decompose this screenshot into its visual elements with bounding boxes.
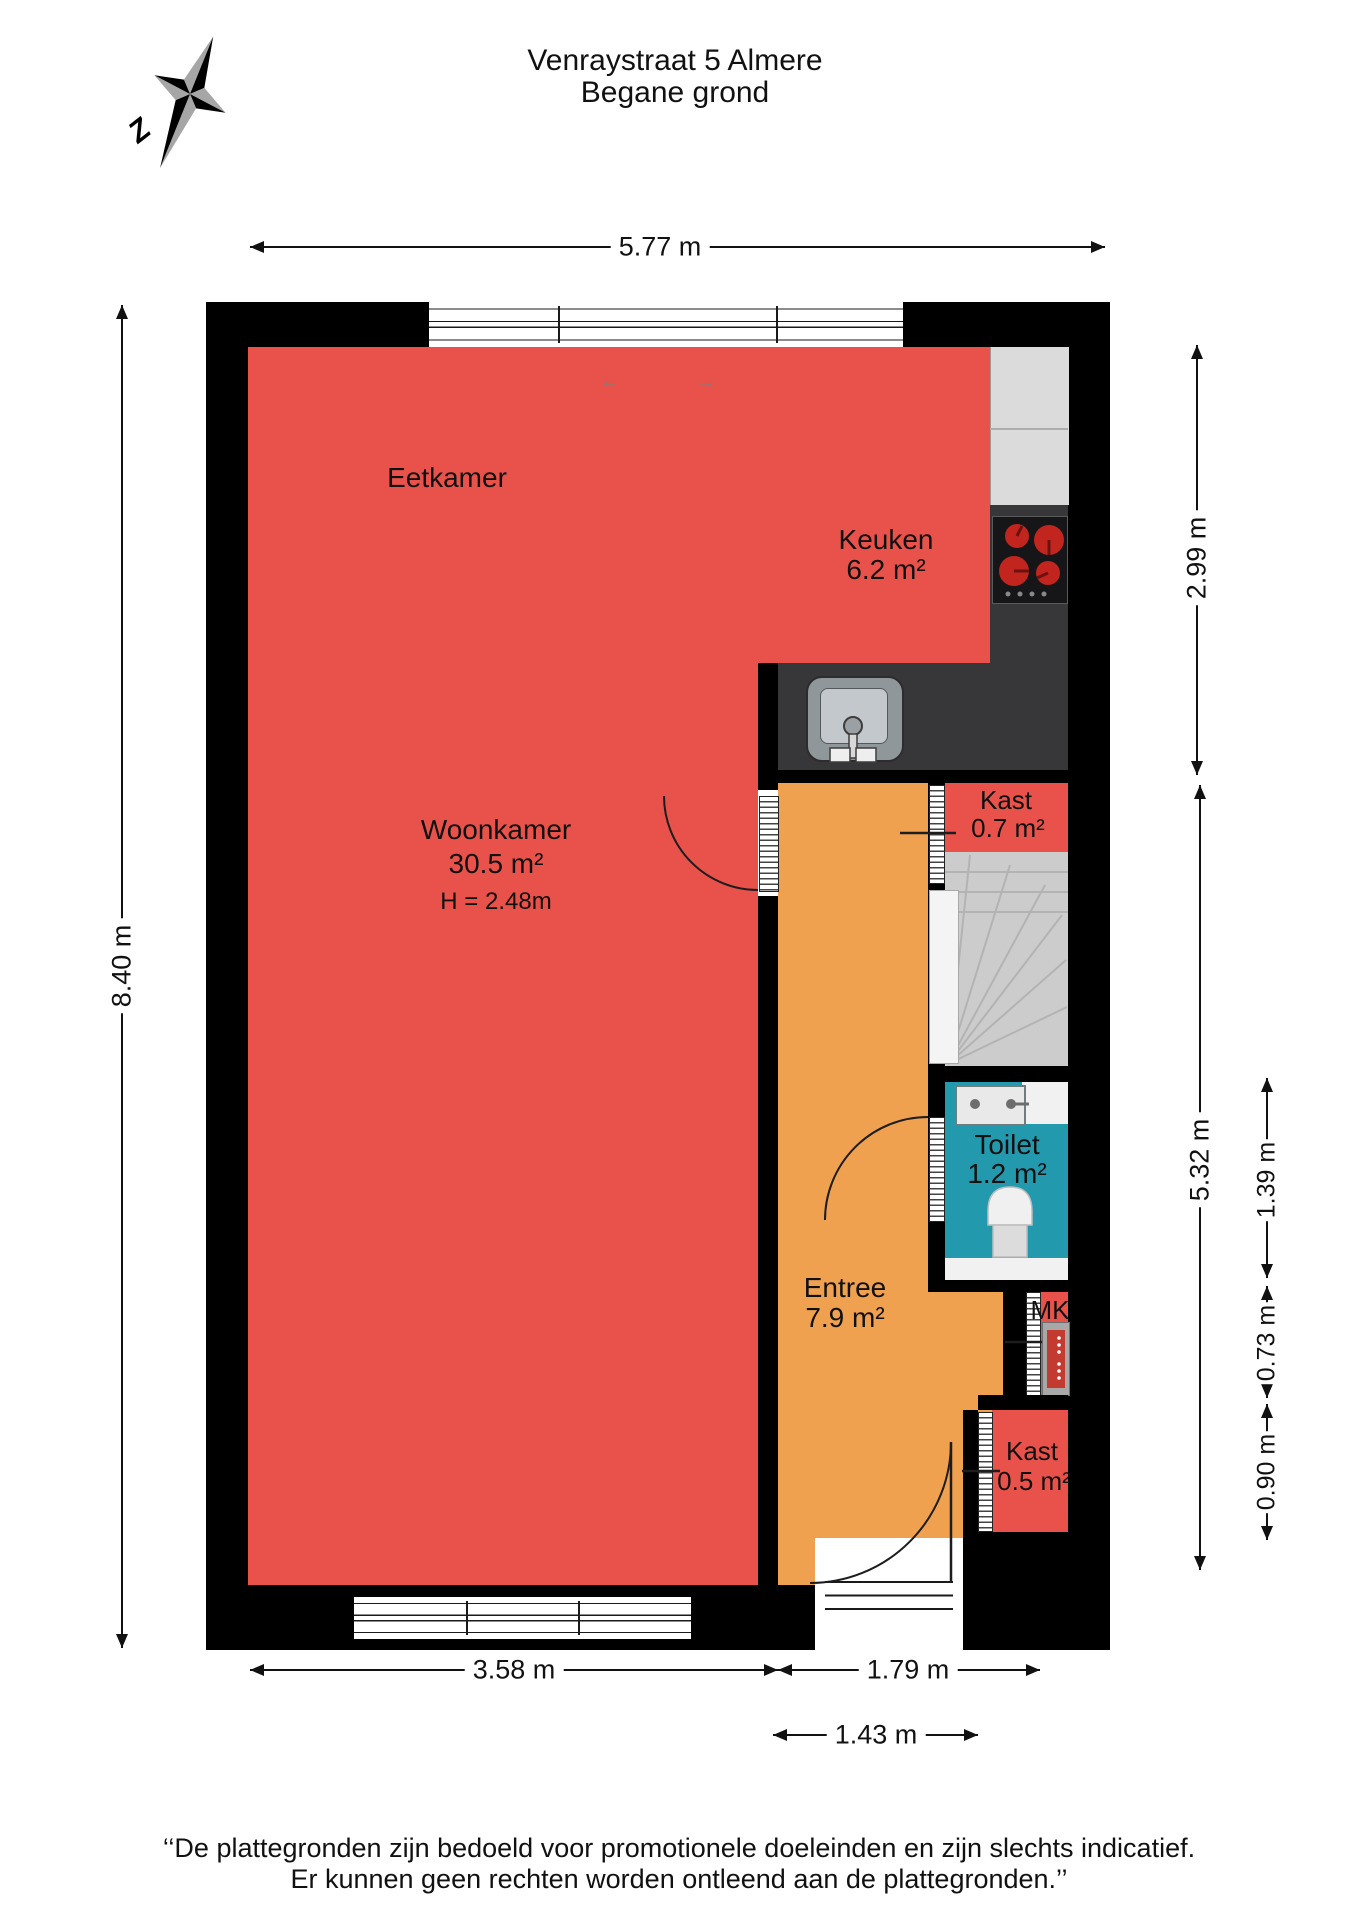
dim-left-label: 8.40 m [107, 919, 138, 1014]
label-mk: MK [1031, 1296, 1070, 1326]
dim-bottom-inner-label: 1.43 m [827, 1720, 926, 1751]
dim-far-lower-arrow-bottom [1261, 1526, 1273, 1540]
dim-right-upper-label: 2.99 m [1182, 511, 1213, 606]
dim-right-upper-arrow-top [1191, 345, 1203, 359]
dim-far-middle-arrow-bottom [1261, 1384, 1273, 1398]
dim-far-lower-label: 0.90 m [1253, 1431, 1282, 1513]
dim-bottom-right-arrow-left [778, 1664, 792, 1676]
label-keuken: Keuken [839, 524, 934, 556]
dim-bottom-left-arrow-left [250, 1664, 264, 1676]
dim-bottom-left-label: 3.58 m [465, 1655, 564, 1686]
dim-top-arrow-right [1091, 241, 1105, 253]
label-kast-boven: Kast [980, 786, 1032, 816]
disclaimer-line-1: ‘‘De plattegronden zijn bedoeld voor pro… [163, 1833, 1195, 1864]
label-kast-onder: Kast [1006, 1437, 1058, 1467]
toilet-door-arc [825, 1117, 928, 1220]
label-eetkamer: Eetkamer [387, 462, 507, 494]
label-keuken-area: 6.2 m² [846, 554, 925, 586]
front-door-arc [810, 1442, 951, 1583]
dim-bottom-right-arrow-right [1026, 1664, 1040, 1676]
label-entree: Entree [804, 1272, 887, 1304]
label-woonkamer: Woonkamer [421, 814, 571, 846]
label-kast-boven-area: 0.7 m² [971, 814, 1045, 844]
floorplan-page: Z Venraystraat 5 Almere Begane grond [0, 0, 1358, 1920]
dim-far-upper-arrow-bottom [1261, 1264, 1273, 1278]
label-toilet: Toilet [974, 1129, 1039, 1161]
dim-top-label: 5.77 m [611, 232, 710, 263]
label-kast-onder-area: 0.5 m² [997, 1467, 1071, 1497]
dim-bottom-inner-arrow-right [964, 1729, 978, 1741]
dim-far-upper-arrow-top [1261, 1078, 1273, 1092]
dim-bottom-inner-arrow-left [773, 1729, 787, 1741]
label-woonkamer-area: 30.5 m² [449, 848, 544, 880]
label-entree-area: 7.9 m² [805, 1302, 884, 1334]
dim-right-lower-arrow-bottom [1194, 1556, 1206, 1570]
dim-right-lower-label: 5.32 m [1185, 1113, 1216, 1208]
dim-left-arrow-top [116, 305, 128, 319]
door-arcs-layer [0, 0, 1358, 1920]
dim-bottom-left-arrow-right [764, 1664, 778, 1676]
dim-left-arrow-bottom [116, 1634, 128, 1648]
living-hall-door-arc [664, 796, 758, 890]
label-toilet-area: 1.2 m² [967, 1158, 1046, 1190]
dim-bottom-right-label: 1.79 m [859, 1655, 958, 1686]
label-woonkamer-height: H = 2.48m [440, 888, 551, 916]
dim-far-middle-arrow-top [1261, 1286, 1273, 1300]
disclaimer-line-2: Er kunnen geen rechten worden ontleend a… [290, 1864, 1067, 1895]
dim-far-upper-label: 1.39 m [1253, 1139, 1282, 1221]
dim-far-lower-arrow-top [1261, 1404, 1273, 1418]
dim-right-upper-arrow-bottom [1191, 761, 1203, 775]
dim-far-middle-label: 0.73 m [1253, 1302, 1282, 1384]
dim-top-arrow-left [250, 241, 264, 253]
dim-right-lower-arrow-top [1194, 785, 1206, 799]
